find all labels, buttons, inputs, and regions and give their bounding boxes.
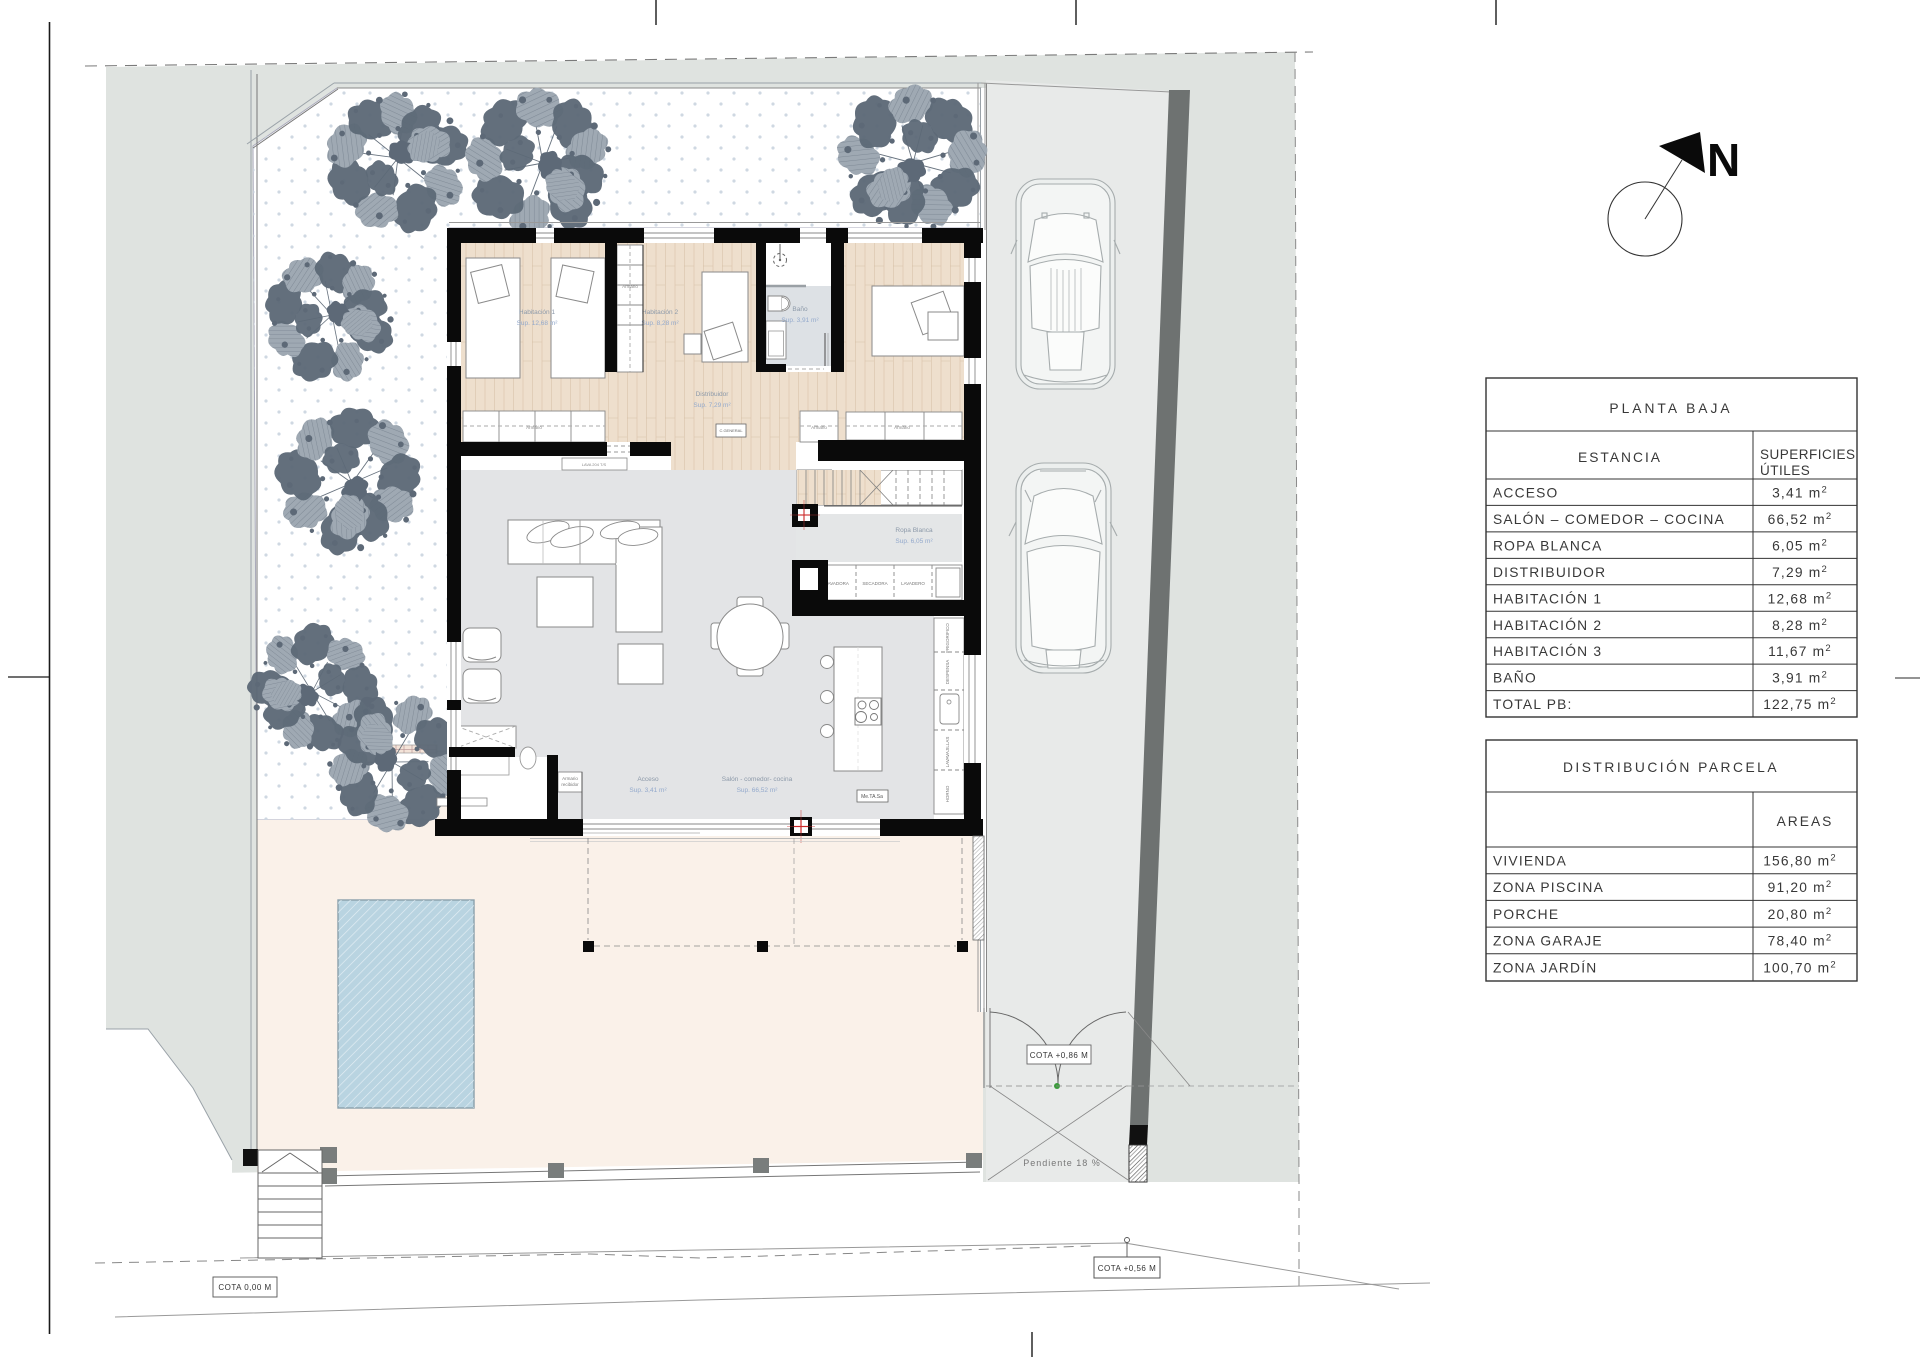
- svg-text:3,41 m2: 3,41 m2: [1772, 485, 1828, 501]
- svg-text:Sup. 6,05 m²: Sup. 6,05 m²: [895, 538, 933, 545]
- svg-text:Sup. 7,29 m²: Sup. 7,29 m²: [693, 402, 731, 409]
- svg-text:Distribuidor: Distribuidor: [696, 391, 730, 398]
- svg-text:Acceso: Acceso: [637, 776, 659, 783]
- svg-text:6,05 m2: 6,05 m2: [1772, 537, 1828, 553]
- svg-text:11,67 m2: 11,67 m2: [1768, 643, 1832, 659]
- svg-text:ESTANCIA: ESTANCIA: [1578, 450, 1662, 465]
- svg-text:122,75 m2: 122,75 m2: [1763, 696, 1837, 712]
- svg-text:Baño: Baño: [792, 306, 808, 313]
- svg-text:Sup. 3,91 m²: Sup. 3,91 m²: [781, 317, 819, 324]
- svg-text:Armario: Armario: [622, 284, 638, 289]
- svg-text:Habitación 2: Habitación 2: [642, 309, 679, 316]
- svg-text:C.GENERAL: C.GENERAL: [719, 428, 743, 433]
- svg-text:COTA +0,56 M: COTA +0,56 M: [1098, 1264, 1157, 1273]
- svg-text:PORCHE: PORCHE: [1493, 907, 1559, 922]
- svg-text:COTA 0,00 M: COTA 0,00 M: [218, 1283, 271, 1292]
- svg-text:SALÓN – COMEDOR – COCINA: SALÓN – COMEDOR – COCINA: [1493, 511, 1725, 527]
- svg-text:AREAS: AREAS: [1777, 814, 1834, 829]
- svg-text:20,80 m2: 20,80 m2: [1768, 906, 1833, 922]
- svg-text:DISTRIBUIDOR: DISTRIBUIDOR: [1493, 565, 1606, 580]
- svg-text:Sup. 12,68 m²: Sup. 12,68 m²: [517, 320, 559, 327]
- svg-text:VIVIENDA: VIVIENDA: [1493, 854, 1567, 869]
- svg-text:HABITACIÓN 2: HABITACIÓN 2: [1493, 617, 1602, 633]
- svg-text:Armario: Armario: [811, 425, 827, 430]
- svg-text:TOTAL PB:: TOTAL PB:: [1493, 697, 1573, 712]
- svg-text:BAÑO: BAÑO: [1493, 670, 1537, 686]
- svg-text:ACCESO: ACCESO: [1493, 486, 1558, 501]
- svg-text:78,40 m2: 78,40 m2: [1768, 933, 1833, 949]
- svg-text:66,52 m2: 66,52 m2: [1768, 511, 1833, 527]
- svg-text:8,28 m2: 8,28 m2: [1772, 617, 1828, 633]
- svg-text:Salón - comedor- cocina: Salón - comedor- cocina: [722, 776, 793, 783]
- svg-text:Armario: Armario: [894, 425, 910, 430]
- svg-text:3,91 m2: 3,91 m2: [1772, 670, 1828, 686]
- svg-text:ZONA PISCINA: ZONA PISCINA: [1493, 880, 1604, 895]
- svg-text:Habitación 1: Habitación 1: [519, 309, 556, 316]
- svg-text:SUPERFICIES: SUPERFICIES: [1760, 447, 1856, 462]
- svg-text:LAVADORA: LAVADORA: [825, 581, 849, 586]
- svg-text:LAVAVAJILLAS: LAVAVAJILLAS: [945, 737, 950, 768]
- svg-text:ÚTILES: ÚTILES: [1760, 463, 1810, 478]
- svg-text:7,29 m2: 7,29 m2: [1772, 564, 1828, 580]
- svg-text:PLANTA BAJA: PLANTA BAJA: [1609, 401, 1732, 416]
- svg-text:156,80 m2: 156,80 m2: [1763, 853, 1837, 869]
- svg-text:LAVA 204 T/S: LAVA 204 T/S: [582, 462, 607, 467]
- svg-text:Armario: Armario: [562, 776, 578, 781]
- svg-text:SECADORA: SECADORA: [862, 581, 887, 586]
- svg-text:DESPENSA: DESPENSA: [945, 660, 950, 685]
- svg-text:Sup. 66,52 m²: Sup. 66,52 m²: [737, 787, 779, 794]
- svg-text:DISTRIBUCIÓN PARCELA: DISTRIBUCIÓN PARCELA: [1563, 759, 1779, 775]
- svg-text:ZONA JARDÍN: ZONA JARDÍN: [1493, 959, 1597, 975]
- svg-text:HORNO: HORNO: [945, 785, 950, 802]
- svg-text:91,20 m2: 91,20 m2: [1768, 879, 1833, 895]
- svg-text:Sup. 8,28 m²: Sup. 8,28 m²: [641, 320, 679, 327]
- svg-text:recibidor: recibidor: [561, 782, 579, 787]
- svg-text:Sup. 3,41 m²: Sup. 3,41 m²: [629, 787, 667, 794]
- svg-text:HABITACIÓN 1: HABITACIÓN 1: [1493, 590, 1602, 606]
- svg-text:N: N: [1707, 134, 1740, 186]
- svg-text:Pendiente 18 %: Pendiente 18 %: [1023, 1158, 1101, 1168]
- svg-text:LAVADERO: LAVADERO: [901, 581, 925, 586]
- svg-text:ZONA GARAJE: ZONA GARAJE: [1493, 934, 1603, 949]
- svg-text:12,68 m2: 12,68 m2: [1768, 590, 1833, 606]
- svg-text:Ropa Blanca: Ropa Blanca: [895, 527, 933, 534]
- svg-text:Me.TA.Sa: Me.TA.Sa: [861, 794, 883, 800]
- svg-text:HABITACIÓN 3: HABITACIÓN 3: [1493, 643, 1602, 659]
- svg-text:FRIGORIFICO: FRIGORIFICO: [945, 623, 950, 653]
- svg-text:ROPA BLANCA: ROPA BLANCA: [1493, 538, 1603, 553]
- svg-text:100,70 m2: 100,70 m2: [1763, 959, 1837, 975]
- svg-text:COTA +0,86 M: COTA +0,86 M: [1030, 1051, 1089, 1060]
- svg-text:Armario: Armario: [526, 425, 542, 430]
